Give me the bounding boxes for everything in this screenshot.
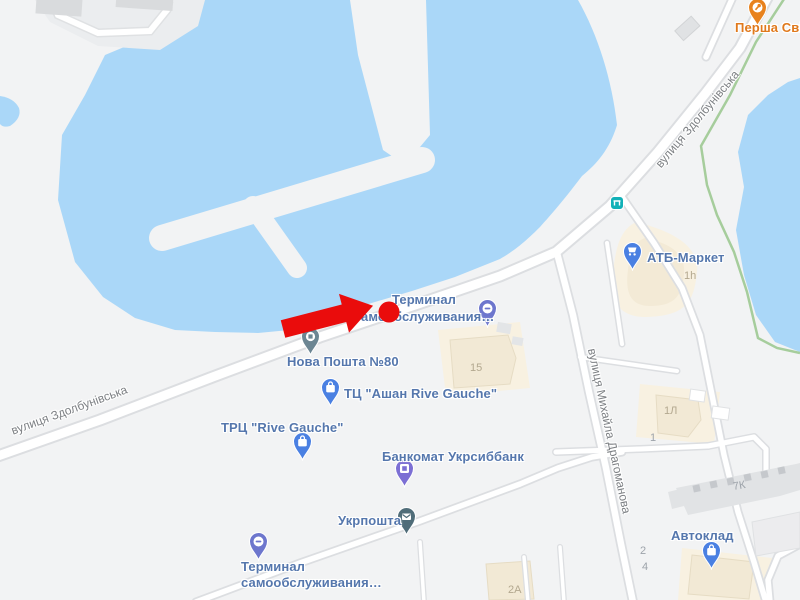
atm-icon (400, 464, 409, 473)
poi-label-rive-gauche[interactable]: ТРЦ "Rive Gauche" (221, 420, 344, 435)
building-label-7k: 7К (732, 479, 746, 493)
poi-label-terminal-top[interactable]: Терминал самообслуживания… (340, 291, 508, 325)
terminal-icon (253, 537, 263, 547)
poi-label-line: Терминал (340, 291, 508, 308)
pin-ashan-mall[interactable] (319, 377, 342, 407)
poi-label-ashan[interactable]: ТЦ "Ашан Rive Gauche" (344, 386, 497, 401)
bus-stop-icon[interactable] (610, 196, 624, 215)
poi-label-line: Терминал (241, 559, 382, 575)
building-label-15: 15 (470, 362, 482, 374)
building-label-1h: 1h (684, 270, 696, 282)
pin-terminal-bottom[interactable] (247, 531, 270, 561)
building-label-1: 1 (650, 432, 656, 444)
building-label-2a: 2А (508, 584, 521, 596)
pin-nova-poshta[interactable] (299, 326, 322, 356)
poi-label-avtoklad[interactable]: Автоклад (671, 528, 734, 543)
poi-label-persha[interactable]: Перша Сві (735, 20, 800, 35)
pin-atb-market[interactable] (621, 241, 644, 271)
pin-rive-gauche-mall[interactable] (291, 431, 314, 461)
poi-label-ukrposhta[interactable]: Укрпошта (338, 513, 401, 528)
poi-label-terminal-bottom[interactable]: Терминал самообслуживания… (241, 559, 382, 591)
building-label-4: 4 (642, 561, 648, 573)
pin-avtoklad[interactable] (700, 540, 723, 570)
poi-label-line: самообслуживания… (241, 575, 382, 591)
envelope-icon (402, 514, 411, 521)
poi-label-line: самообслуживания… (340, 308, 508, 325)
poi-label-bankomat[interactable]: Банкомат Укрсиббанк (382, 449, 524, 464)
location-marker-dot[interactable] (379, 302, 400, 323)
map-canvas[interactable]: вулиця Здолбунівська вулиця Здолбунівськ… (0, 0, 800, 600)
building-label-2: 2 (640, 545, 646, 557)
parcel-icon (305, 332, 314, 341)
restaurant-icon (752, 3, 762, 13)
poi-label-atb-market[interactable]: АТБ-Маркет (647, 250, 724, 265)
poi-label-nova-poshta[interactable]: Нова Пошта №80 (287, 354, 399, 369)
building-label-1l: 1Л (664, 405, 677, 417)
